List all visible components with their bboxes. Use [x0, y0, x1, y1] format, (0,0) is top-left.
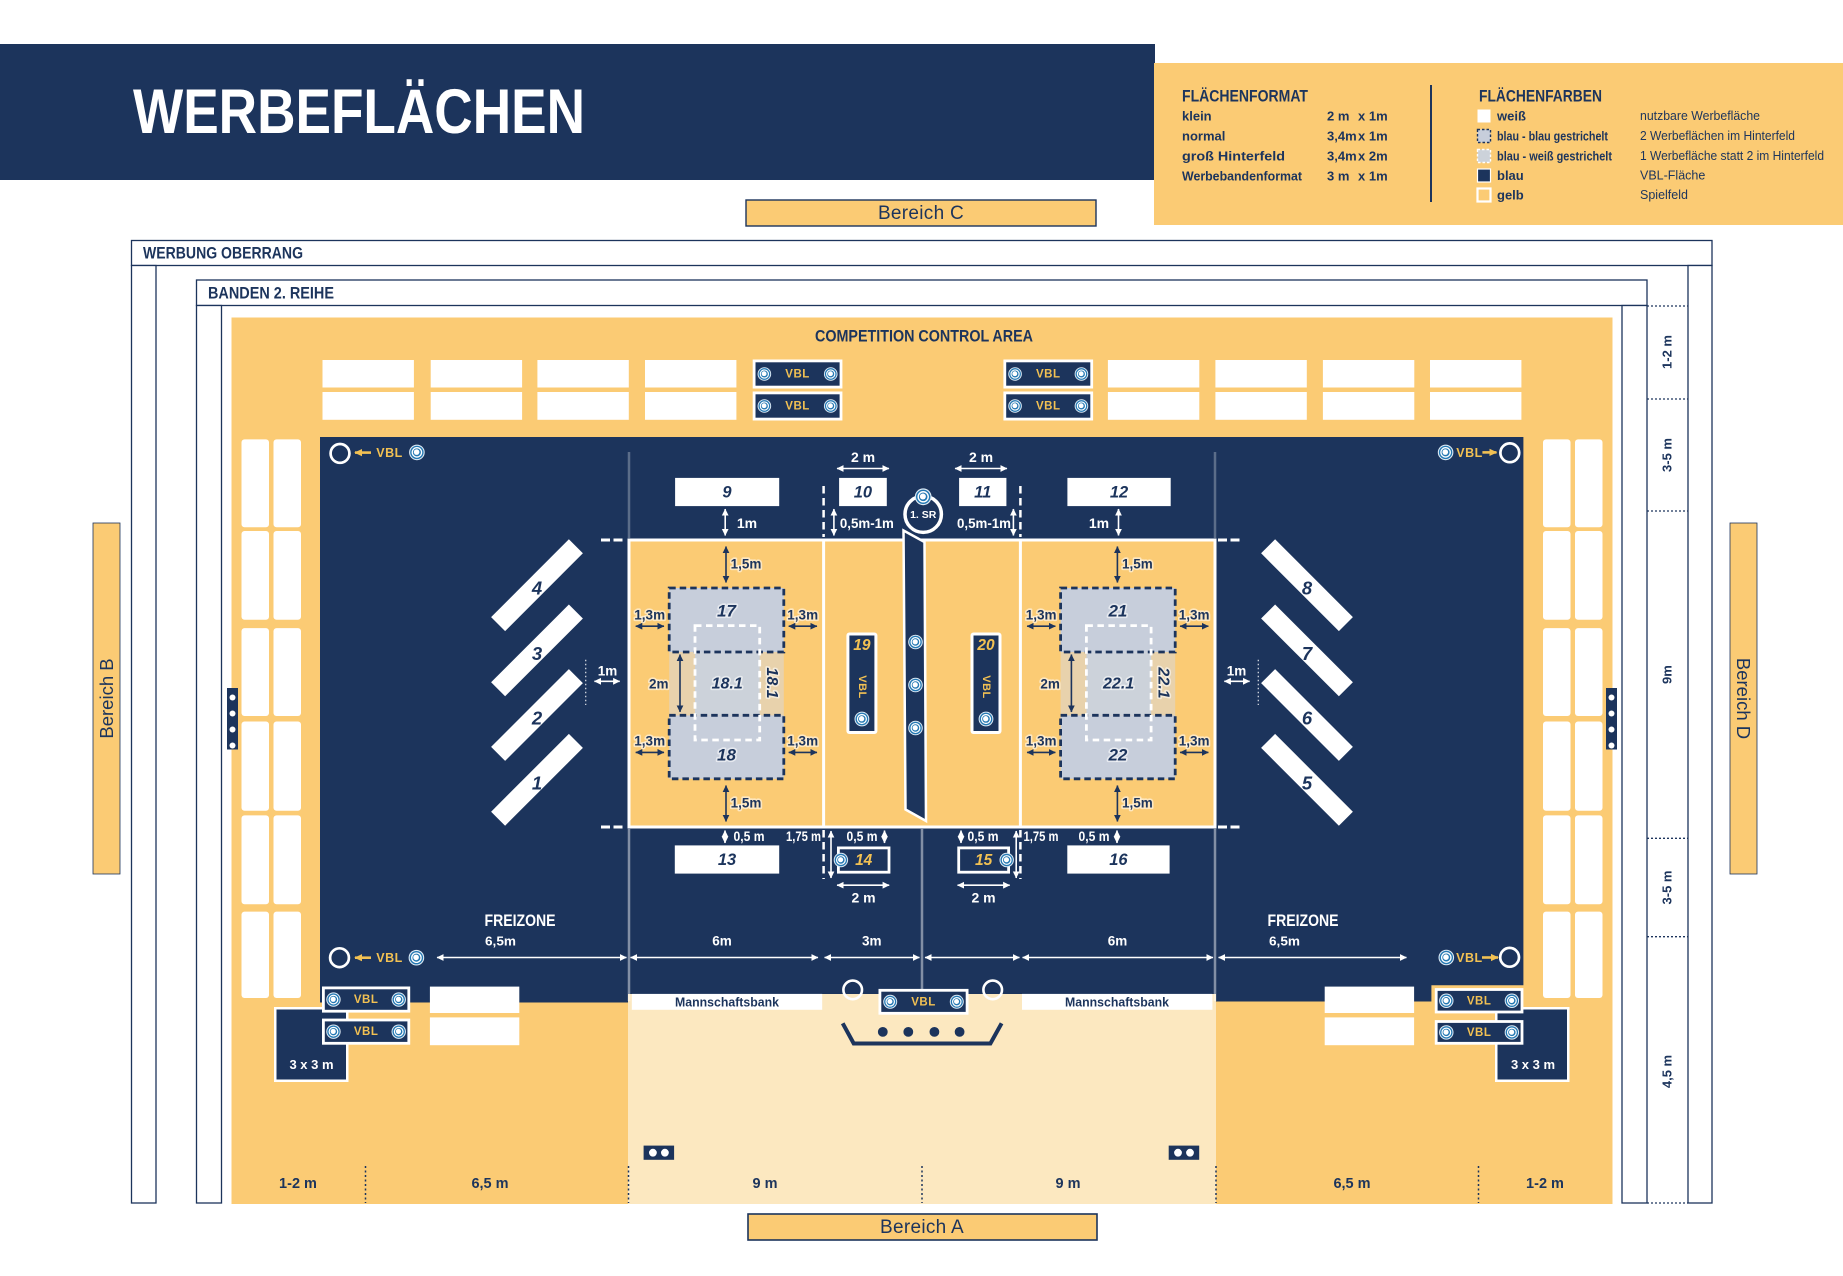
svg-text:6m: 6m [1108, 934, 1128, 949]
svg-text:17: 17 [717, 602, 737, 621]
svg-text:WERBEFLÄCHEN: WERBEFLÄCHEN [133, 77, 585, 147]
svg-text:Spielfeld: Spielfeld [1640, 188, 1688, 202]
svg-text:VBL: VBL [785, 401, 810, 413]
svg-text:3 m: 3 m [1327, 169, 1349, 184]
svg-text:2 Werbeflächen im Hinterfeld: 2 Werbeflächen im Hinterfeld [1640, 129, 1795, 143]
svg-text:1,3m: 1,3m [1179, 734, 1210, 749]
svg-text:3m: 3m [862, 934, 882, 949]
svg-text:1,75 m: 1,75 m [1024, 828, 1059, 844]
svg-text:0,5 m: 0,5 m [1079, 828, 1110, 844]
svg-text:1,75 m: 1,75 m [786, 828, 821, 844]
svg-text:1-2 m: 1-2 m [1526, 1176, 1564, 1192]
svg-text:normal: normal [1182, 129, 1225, 144]
svg-text:VBL: VBL [376, 951, 403, 965]
svg-text:9: 9 [722, 484, 732, 502]
svg-text:x 2m: x 2m [1358, 149, 1388, 164]
svg-text:1m: 1m [1089, 515, 1109, 531]
svg-text:1,5m: 1,5m [731, 557, 762, 572]
svg-text:1,3m: 1,3m [634, 734, 665, 749]
svg-text:6,5m: 6,5m [485, 935, 516, 949]
svg-text:Bereich D: Bereich D [1733, 658, 1754, 739]
svg-text:3 x 3 m: 3 x 3 m [1511, 1057, 1555, 1072]
svg-text:1. SR: 1. SR [910, 509, 937, 521]
svg-text:blau - blau gestrichelt: blau - blau gestrichelt [1497, 129, 1609, 144]
svg-text:0,5 m: 0,5 m [968, 828, 999, 844]
svg-text:3,4m: 3,4m [1327, 149, 1357, 164]
svg-text:6m: 6m [712, 934, 732, 949]
svg-text:VBL: VBL [354, 1026, 379, 1038]
svg-text:1,5m: 1,5m [1122, 557, 1153, 572]
svg-text:Mannschaftsbank: Mannschaftsbank [675, 994, 780, 1009]
svg-text:8: 8 [1302, 578, 1313, 599]
svg-text:4: 4 [531, 578, 542, 599]
svg-text:11: 11 [974, 484, 991, 502]
svg-text:FLÄCHENFORMAT: FLÄCHENFORMAT [1182, 87, 1308, 106]
svg-text:VBL: VBL [1456, 951, 1483, 965]
svg-text:VBL: VBL [1036, 369, 1061, 381]
svg-text:3-5 m: 3-5 m [1660, 871, 1675, 905]
svg-text:Bereich B: Bereich B [96, 658, 117, 738]
svg-text:VBL: VBL [354, 994, 379, 1006]
svg-text:1,3m: 1,3m [1026, 734, 1057, 749]
svg-text:1,3m: 1,3m [787, 608, 818, 623]
svg-text:COMPETITION CONTROL AREA: COMPETITION CONTROL AREA [815, 328, 1033, 346]
svg-text:0,5m-1m: 0,5m-1m [957, 515, 1011, 531]
svg-text:0,5m-1m: 0,5m-1m [840, 515, 894, 531]
svg-text:1-2 m: 1-2 m [279, 1176, 317, 1192]
svg-text:1,3m: 1,3m [787, 734, 818, 749]
svg-text:6,5m: 6,5m [1269, 935, 1300, 949]
svg-text:2 m: 2 m [971, 890, 995, 906]
svg-text:1 Werbefläche statt 2 im Hinte: 1 Werbefläche statt 2 im Hinterfeld [1640, 149, 1824, 163]
svg-text:x 1m: x 1m [1358, 169, 1388, 184]
svg-text:klein: klein [1182, 109, 1212, 124]
svg-text:3-5 m: 3-5 m [1660, 438, 1675, 472]
svg-text:1m: 1m [598, 664, 618, 679]
svg-text:Bereich A: Bereich A [880, 1217, 964, 1238]
svg-text:7: 7 [1302, 643, 1314, 664]
svg-text:2m: 2m [1040, 677, 1060, 692]
svg-text:WERBUNG OBERRANG: WERBUNG OBERRANG [143, 245, 303, 263]
svg-text:6,5 m: 6,5 m [1333, 1176, 1370, 1192]
svg-text:20: 20 [976, 637, 995, 654]
svg-text:12: 12 [1110, 484, 1128, 502]
svg-text:2: 2 [531, 708, 543, 729]
svg-text:22: 22 [1107, 746, 1127, 765]
svg-text:VBL: VBL [785, 369, 810, 381]
svg-text:16: 16 [1109, 851, 1128, 869]
svg-text:3,4m: 3,4m [1327, 129, 1357, 144]
svg-text:blau: blau [1497, 168, 1524, 183]
svg-text:22.1: 22.1 [1102, 676, 1134, 693]
svg-text:9 m: 9 m [753, 1176, 778, 1192]
svg-text:blau - weiß gestrichelt: blau - weiß gestrichelt [1497, 149, 1613, 164]
svg-text:18.1: 18.1 [763, 667, 780, 698]
svg-text:weiß: weiß [1496, 109, 1526, 124]
svg-text:1m: 1m [737, 515, 757, 531]
svg-text:1: 1 [532, 772, 542, 793]
svg-text:1,5m: 1,5m [1122, 796, 1153, 811]
svg-text:VBL: VBL [1036, 401, 1061, 413]
svg-text:13: 13 [718, 851, 736, 869]
svg-text:groß Hinterfeld: groß Hinterfeld [1182, 149, 1285, 164]
svg-text:2 m: 2 m [969, 449, 993, 465]
svg-text:2 m: 2 m [851, 449, 875, 465]
svg-text:2 m: 2 m [851, 890, 875, 906]
svg-text:9 m: 9 m [1056, 1176, 1081, 1192]
svg-text:gelb: gelb [1497, 188, 1524, 203]
svg-text:6: 6 [1302, 708, 1313, 729]
svg-text:VBL: VBL [980, 675, 992, 699]
svg-text:x 1m: x 1m [1358, 129, 1388, 144]
svg-text:FREIZONE: FREIZONE [1268, 912, 1339, 930]
svg-text:15: 15 [975, 852, 993, 869]
svg-text:VBL: VBL [1456, 446, 1483, 460]
svg-text:1,3m: 1,3m [1026, 608, 1057, 623]
svg-text:19: 19 [853, 637, 871, 654]
svg-text:3 x 3 m: 3 x 3 m [289, 1057, 333, 1072]
svg-text:4,5 m: 4,5 m [1660, 1055, 1675, 1088]
svg-text:BANDEN 2. REIHE: BANDEN 2. REIHE [208, 285, 334, 303]
svg-text:1,3m: 1,3m [634, 608, 665, 623]
svg-text:1m: 1m [1227, 664, 1247, 679]
svg-text:VBL: VBL [376, 446, 403, 460]
svg-text:5: 5 [1302, 772, 1313, 793]
svg-text:Werbebandenformat: Werbebandenformat [1182, 169, 1303, 184]
svg-text:Bereich C: Bereich C [878, 203, 964, 224]
svg-text:10: 10 [854, 484, 873, 502]
svg-text:FREIZONE: FREIZONE [485, 912, 556, 930]
svg-text:VBL: VBL [1467, 1027, 1492, 1039]
svg-text:1-2 m: 1-2 m [1660, 335, 1675, 369]
svg-text:0,5 m: 0,5 m [734, 828, 765, 844]
svg-text:14: 14 [855, 852, 873, 869]
svg-text:6,5 m: 6,5 m [471, 1176, 508, 1192]
svg-text:18.1: 18.1 [712, 676, 743, 693]
svg-text:0,5 m: 0,5 m [847, 828, 878, 844]
svg-text:1,5m: 1,5m [731, 796, 762, 811]
svg-text:1,3m: 1,3m [1179, 608, 1210, 623]
svg-text:VBL-Fläche: VBL-Fläche [1640, 169, 1705, 183]
svg-text:VBL: VBL [856, 675, 868, 699]
svg-text:nutzbare Werbefläche: nutzbare Werbefläche [1640, 109, 1760, 123]
svg-text:22.1: 22.1 [1155, 666, 1172, 698]
svg-text:2m: 2m [649, 677, 669, 692]
svg-text:x 1m: x 1m [1358, 109, 1388, 124]
svg-text:21: 21 [1107, 602, 1127, 621]
svg-text:9m: 9m [1660, 665, 1675, 684]
svg-text:Mannschaftsbank: Mannschaftsbank [1065, 994, 1170, 1009]
svg-text:2 m: 2 m [1327, 109, 1349, 124]
svg-text:FLÄCHENFARBEN: FLÄCHENFARBEN [1479, 87, 1602, 106]
svg-text:VBL: VBL [1467, 995, 1492, 1007]
svg-text:VBL: VBL [911, 996, 936, 1008]
svg-text:18: 18 [717, 746, 736, 765]
svg-text:3: 3 [532, 643, 543, 664]
